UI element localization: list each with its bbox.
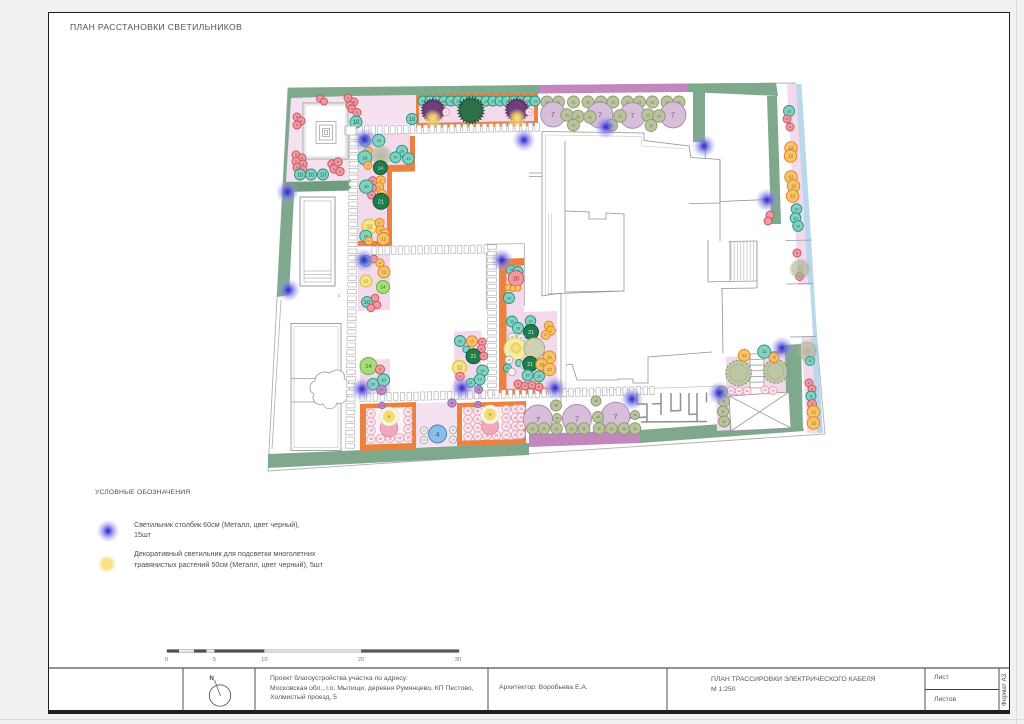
svg-text:16: 16 [422, 429, 426, 433]
svg-text:11: 11 [582, 427, 586, 431]
svg-text:7: 7 [551, 112, 555, 119]
svg-text:9: 9 [379, 368, 381, 372]
svg-text:11: 11 [572, 100, 576, 104]
svg-text:13: 13 [421, 99, 425, 103]
svg-text:18: 18 [594, 399, 598, 403]
svg-text:13: 13 [491, 99, 495, 103]
svg-text:12: 12 [791, 184, 797, 189]
svg-text:16: 16 [771, 389, 775, 393]
svg-text:20: 20 [513, 277, 519, 283]
svg-text:16: 16 [466, 435, 470, 439]
svg-text:11: 11 [762, 349, 767, 354]
svg-text:16: 16 [422, 438, 426, 442]
svg-text:10: 10 [409, 117, 415, 123]
svg-text:16: 16 [369, 412, 373, 416]
svg-text:11: 11 [649, 124, 653, 128]
svg-text:11: 11 [651, 100, 655, 104]
svg-text:12: 12 [364, 279, 369, 284]
svg-text:11: 11 [542, 427, 546, 431]
svg-text:9: 9 [372, 179, 374, 183]
svg-text:11: 11 [572, 123, 576, 127]
svg-text:16: 16 [476, 417, 480, 421]
svg-text:12: 12 [457, 365, 463, 371]
svg-text:16: 16 [519, 407, 523, 411]
svg-text:11: 11 [570, 427, 574, 431]
svg-text:10: 10 [796, 224, 800, 228]
svg-text:10: 10 [537, 375, 541, 379]
svg-text:10: 10 [526, 374, 530, 378]
svg-text:5: 5 [213, 657, 216, 663]
svg-text:16: 16 [504, 425, 508, 429]
svg-text:14: 14 [380, 285, 386, 290]
svg-text:16: 16 [406, 419, 410, 423]
svg-text:12: 12 [790, 194, 796, 199]
svg-text:12: 12 [788, 154, 794, 159]
svg-text:10: 10 [308, 173, 314, 179]
svg-text:11: 11 [722, 420, 726, 424]
svg-text:11: 11 [586, 100, 590, 104]
svg-text:10: 10 [480, 369, 484, 373]
svg-text:10: 10 [787, 109, 791, 113]
svg-text:16: 16 [406, 436, 410, 440]
svg-text:13: 13 [533, 99, 537, 103]
svg-text:16: 16 [369, 420, 373, 424]
svg-text:17: 17 [378, 261, 382, 265]
svg-text:11: 11 [565, 113, 569, 117]
svg-text:16: 16 [504, 433, 508, 437]
svg-text:11: 11 [555, 416, 558, 420]
svg-text:18: 18 [554, 404, 558, 408]
svg-text:10: 10 [794, 216, 798, 220]
svg-text:16: 16 [406, 427, 410, 431]
svg-text:12: 12 [811, 421, 817, 426]
svg-text:10: 10 [458, 339, 462, 343]
svg-text:12: 12 [811, 410, 817, 415]
svg-text:17: 17 [367, 239, 371, 243]
svg-text:10: 10 [596, 415, 600, 419]
svg-text:7: 7 [613, 412, 617, 421]
svg-text:17: 17 [379, 179, 383, 183]
svg-text:11: 11 [576, 115, 580, 119]
svg-text:30: 30 [455, 657, 461, 663]
svg-text:16: 16 [398, 436, 402, 440]
svg-text:16: 16 [519, 433, 523, 437]
svg-text:16: 16 [763, 388, 767, 392]
svg-text:16: 16 [476, 434, 480, 438]
svg-text:21: 21 [378, 199, 384, 205]
svg-text:10: 10 [394, 156, 398, 160]
svg-text:10: 10 [320, 173, 326, 179]
svg-text:10: 10 [478, 378, 482, 382]
svg-text:12: 12 [547, 355, 553, 360]
svg-text:13: 13 [442, 99, 446, 103]
svg-text:16: 16 [369, 437, 373, 441]
svg-text:20: 20 [358, 657, 364, 663]
svg-text:10: 10 [808, 359, 812, 363]
svg-text:11: 11 [555, 427, 559, 431]
svg-text:11: 11 [633, 427, 637, 431]
svg-text:16: 16 [451, 428, 455, 432]
svg-text:11: 11 [809, 394, 813, 398]
svg-text:16: 16 [466, 418, 470, 422]
svg-text:16: 16 [745, 389, 749, 393]
svg-text:10: 10 [510, 320, 514, 324]
svg-text:11: 11 [597, 427, 601, 431]
svg-text:11: 11 [531, 427, 535, 431]
svg-text:13: 13 [449, 99, 453, 103]
svg-text:11: 11 [611, 100, 615, 104]
svg-text:11: 11 [657, 114, 661, 118]
svg-text:0: 0 [165, 657, 168, 663]
svg-text:10: 10 [362, 156, 368, 161]
svg-text:13: 13 [456, 99, 460, 103]
svg-text:10: 10 [529, 319, 533, 323]
svg-text:13: 13 [526, 99, 530, 103]
svg-text:11: 11 [618, 114, 622, 118]
svg-text:12: 12 [381, 237, 387, 242]
svg-text:16: 16 [369, 429, 373, 433]
svg-text:12: 12 [788, 175, 794, 180]
svg-text:17: 17 [366, 164, 370, 168]
svg-text:13: 13 [484, 99, 488, 103]
svg-text:10: 10 [297, 173, 303, 179]
svg-text:10: 10 [364, 184, 369, 189]
svg-text:11: 11 [588, 115, 592, 119]
svg-text:10: 10 [381, 377, 386, 382]
svg-text:16: 16 [519, 416, 523, 420]
svg-text:11: 11 [610, 427, 614, 431]
svg-text:7: 7 [575, 415, 579, 424]
svg-text:12: 12 [742, 353, 747, 358]
svg-text:N: N [210, 676, 214, 682]
svg-text:16: 16 [504, 408, 508, 412]
svg-text:16: 16 [379, 437, 383, 441]
svg-text:11: 11 [721, 410, 725, 414]
svg-text:16: 16 [507, 358, 511, 362]
svg-text:16: 16 [504, 416, 508, 420]
svg-text:17: 17 [380, 388, 384, 392]
svg-text:10: 10 [400, 149, 404, 153]
svg-text:11: 11 [477, 388, 480, 392]
svg-text:13: 13 [406, 157, 410, 161]
svg-text:14: 14 [365, 364, 371, 370]
svg-text:17: 17 [544, 333, 548, 337]
svg-text:7: 7 [671, 113, 675, 120]
svg-text:16: 16 [476, 426, 480, 430]
svg-text:16: 16 [476, 409, 480, 413]
svg-text:10: 10 [353, 120, 360, 126]
svg-text:10: 10 [516, 326, 520, 330]
svg-text:12: 12 [367, 224, 373, 230]
svg-text:12: 12 [382, 270, 387, 275]
svg-text:16: 16 [495, 434, 499, 438]
svg-text:14: 14 [378, 165, 384, 171]
svg-text:10: 10 [795, 207, 799, 211]
svg-text:17: 17 [378, 221, 382, 225]
svg-text:11: 11 [622, 427, 626, 431]
svg-text:7: 7 [631, 113, 635, 120]
svg-text:17: 17 [377, 185, 381, 189]
svg-text:16: 16 [466, 426, 470, 430]
svg-text:12: 12 [547, 367, 553, 372]
svg-text:16: 16 [451, 438, 455, 442]
svg-text:12: 12 [470, 339, 475, 344]
svg-text:16: 16 [519, 424, 523, 428]
svg-text:10: 10 [376, 138, 381, 143]
svg-text:4: 4 [436, 431, 440, 438]
svg-text:21: 21 [471, 354, 477, 360]
svg-text:11: 11 [646, 113, 650, 117]
svg-text:7: 7 [536, 415, 540, 424]
svg-text:11: 11 [450, 401, 453, 405]
svg-text:16: 16 [406, 410, 410, 414]
svg-text:16: 16 [633, 413, 637, 417]
svg-text:21: 21 [528, 330, 534, 336]
svg-text:10: 10 [261, 657, 267, 663]
svg-text:13: 13 [498, 99, 502, 103]
svg-text:16: 16 [737, 389, 741, 393]
svg-text:21: 21 [527, 362, 533, 368]
svg-text:10: 10 [507, 296, 511, 300]
svg-text:16: 16 [466, 409, 470, 413]
